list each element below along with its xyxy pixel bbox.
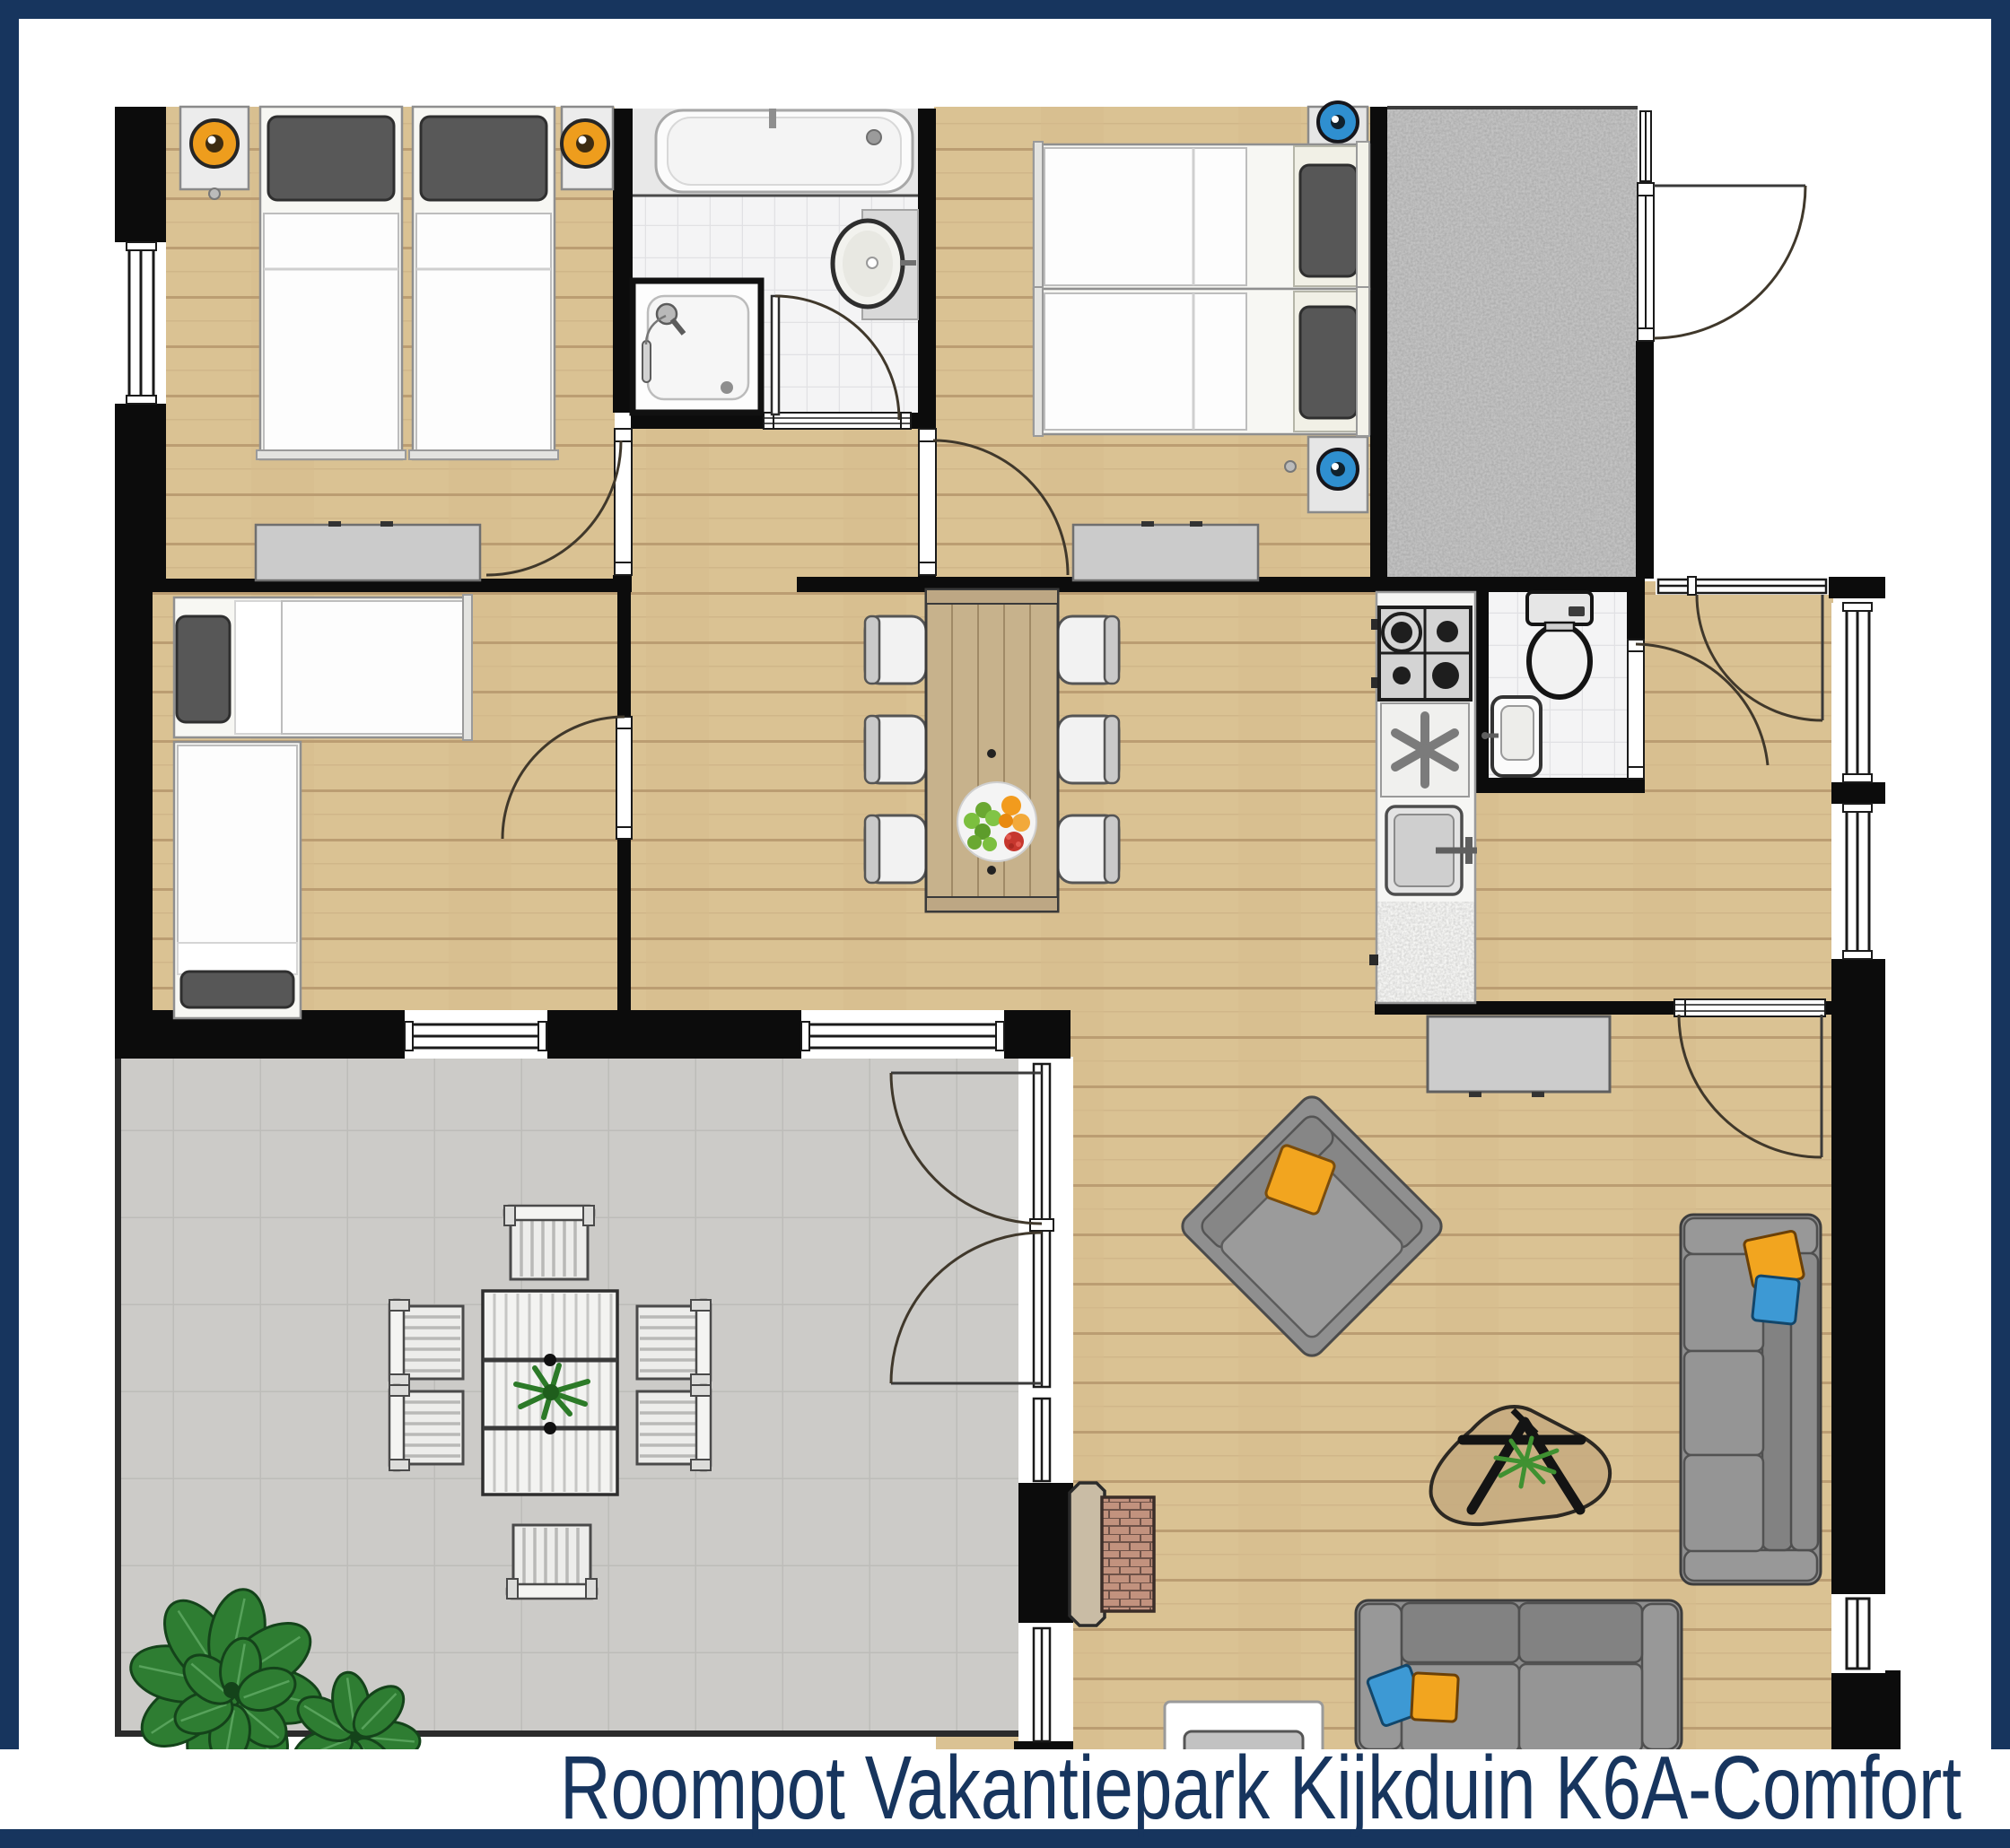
svg-text:Roompot Vakantiepark Kijkduin: Roompot Vakantiepark Kijkduin K6A-Comfor… bbox=[560, 1738, 1962, 1838]
